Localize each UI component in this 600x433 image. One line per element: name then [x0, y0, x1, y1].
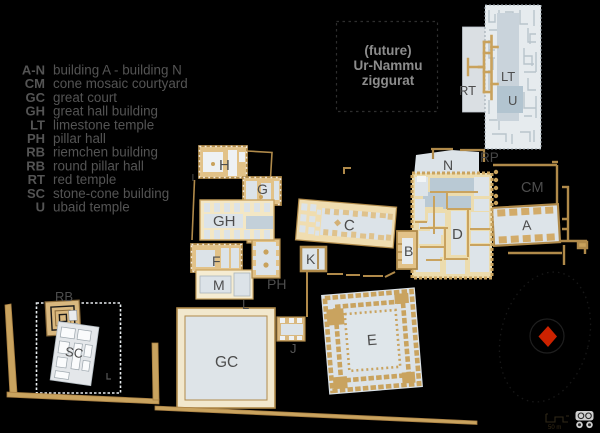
- svg-text:I: I: [192, 173, 195, 184]
- svg-text:RB: RB: [55, 289, 73, 304]
- svg-text:J: J: [290, 341, 297, 356]
- svg-text:SC: SC: [64, 344, 84, 361]
- svg-text:D: D: [452, 226, 463, 243]
- svg-text:ubaid temple: ubaid temple: [53, 200, 130, 215]
- svg-text:RT: RT: [459, 83, 476, 98]
- svg-text:K: K: [306, 251, 316, 267]
- svg-text:RP: RP: [480, 150, 499, 165]
- svg-text:A: A: [522, 217, 533, 234]
- svg-text:GH: GH: [213, 213, 236, 230]
- svg-text:GC: GC: [215, 354, 238, 371]
- svg-text:U: U: [508, 93, 517, 108]
- svg-text:G: G: [257, 181, 268, 197]
- svg-text:Ur-Nammu: Ur-Nammu: [353, 58, 422, 73]
- svg-text:PH: PH: [267, 276, 286, 292]
- svg-text:F: F: [212, 253, 221, 269]
- svg-text:N: N: [443, 157, 453, 173]
- svg-text:(future): (future): [364, 43, 411, 58]
- svg-text:CM: CM: [521, 180, 544, 196]
- svg-text:C: C: [343, 217, 355, 235]
- svg-text:E: E: [366, 332, 377, 350]
- svg-text:LT: LT: [501, 69, 515, 84]
- svg-text:B: B: [404, 243, 413, 259]
- svg-text:M: M: [213, 277, 225, 293]
- svg-text:U: U: [36, 200, 45, 215]
- svg-text:H: H: [219, 157, 230, 174]
- svg-text:L: L: [242, 297, 249, 312]
- svg-text:ziggurat: ziggurat: [362, 73, 415, 88]
- svg-text:50 m: 50 m: [548, 425, 561, 431]
